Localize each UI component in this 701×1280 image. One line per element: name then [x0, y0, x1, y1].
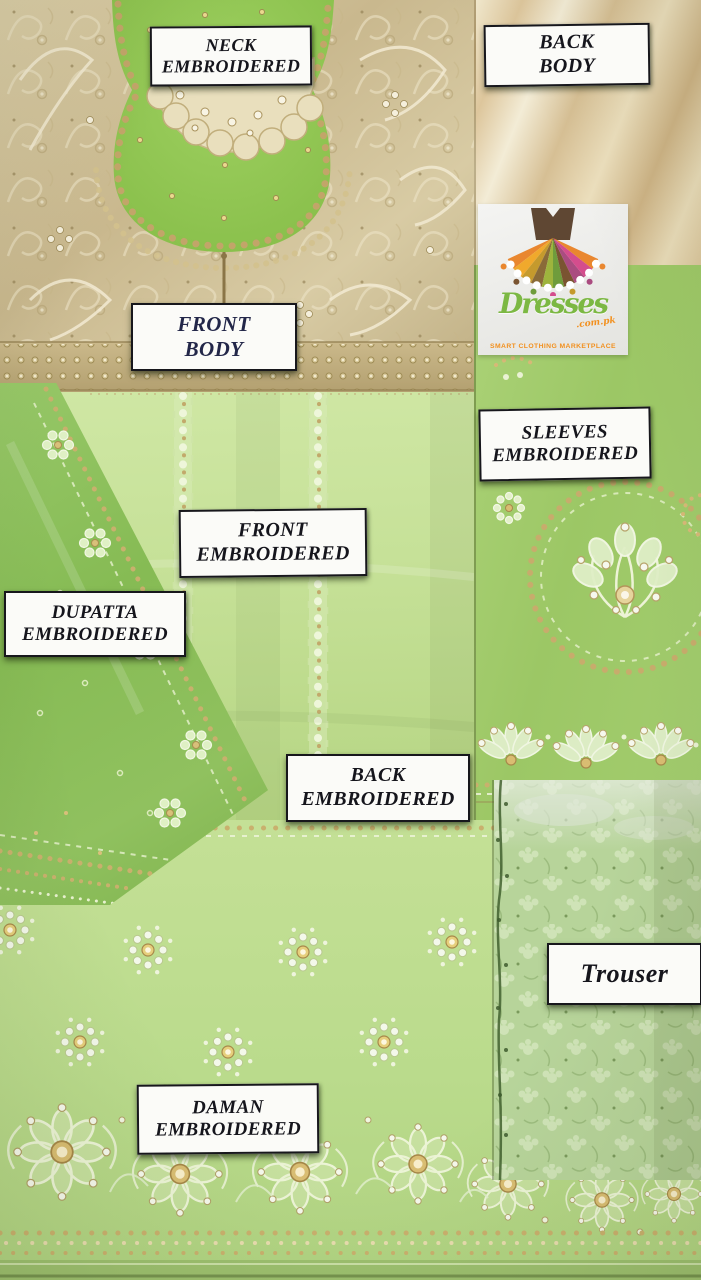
label-line: EMBROIDERED — [301, 788, 454, 812]
medallion-embroidery — [530, 482, 701, 672]
label-line: Trouser — [581, 959, 669, 990]
label-line: FRONT — [238, 519, 308, 543]
label-line: EMBROIDERED — [155, 1118, 301, 1142]
label-dupatta-embroidered: DUPATTA EMBROIDERED — [4, 591, 186, 657]
label-line: DUPATTA — [52, 602, 139, 624]
label-line: EMBROIDERED — [492, 443, 638, 468]
label-line: EMBROIDERED — [22, 624, 168, 646]
label-line: BODY — [539, 55, 595, 79]
label-front-embroidered: FRONT EMBROIDERED — [179, 508, 368, 578]
label-line: EMBROIDERED — [196, 542, 350, 567]
logo-tagline: SMART CLOTHING MARKETPLACE — [478, 343, 628, 350]
label-line: BACK — [351, 764, 406, 788]
label-line: EMBROIDERED — [162, 56, 301, 78]
label-back-body: BACK BODY — [484, 23, 651, 87]
label-trouser: Trouser — [547, 943, 701, 1005]
dress-product-photo-collage: Dresses .com.pk SMART CLOTHING MARKETPLA… — [0, 0, 701, 1280]
logo-brand-text: Dresses — [478, 290, 628, 318]
label-line: BACK — [539, 31, 594, 55]
label-line: BODY — [185, 337, 244, 362]
dresses-logo: Dresses .com.pk SMART CLOTHING MARKETPLA… — [478, 204, 628, 355]
label-line: DAMAN — [192, 1096, 264, 1119]
label-front-body: FRONT BODY — [131, 303, 297, 371]
label-sleeves-embroidered: SLEEVES EMBROIDERED — [478, 407, 651, 482]
label-line: NECK — [206, 35, 257, 57]
label-daman-embroidered: DAMAN EMBROIDERED — [137, 1083, 320, 1155]
dress-icon — [478, 204, 628, 296]
label-line: FRONT — [177, 312, 250, 337]
label-neck-embroidered: NECK EMBROIDERED — [150, 25, 312, 86]
label-back-embroidered: BACK EMBROIDERED — [286, 754, 470, 822]
label-line: SLEEVES — [521, 421, 608, 445]
